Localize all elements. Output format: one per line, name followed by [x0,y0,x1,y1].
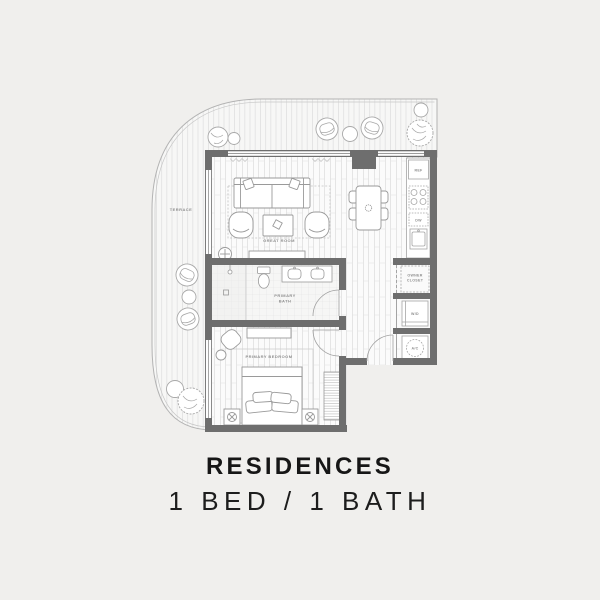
plan-title: RESIDENCES [0,452,600,482]
title-block: RESIDENCES 1 BED / 1 BATH [0,452,600,517]
dresser [247,328,291,338]
armchair-right [305,212,329,238]
owner-closet-label-1: OWNER [407,274,422,278]
refrigerator-label: REF [414,169,423,173]
dining-centerpiece [365,205,371,211]
nightstand-left [224,409,240,425]
primary-bath-label-1: PRIMARY [274,293,295,298]
bed [242,367,302,425]
toilet [258,267,271,288]
terrace-label: TERRACE [170,207,192,212]
structural-pier [352,150,376,169]
terrace-side-table-2 [182,290,196,304]
primary-bath-label-2: BATH [279,299,292,304]
vanity [282,266,332,282]
sofa [234,178,310,208]
kitchen: REF DW [407,158,431,258]
primary-bedroom-label: PRIMARY BEDROOM [246,354,293,359]
kitchen-sink [410,229,427,249]
terrace-side-table-1 [343,127,358,142]
ac-label: A/C [411,347,418,351]
coffee-table [263,215,293,236]
plan-subtitle: 1 BED / 1 BATH [0,486,600,517]
armchair-left [229,212,253,238]
washer-dryer-label: W/D [411,312,419,316]
nightstand-right [302,409,318,425]
range [409,186,428,209]
floorplan-page: TERRACE [0,0,600,600]
dishwasher-label: DW [415,219,422,223]
owner-closet-label-2: CLOSET [407,279,424,283]
great-room-label: GREAT ROOM [263,238,295,243]
